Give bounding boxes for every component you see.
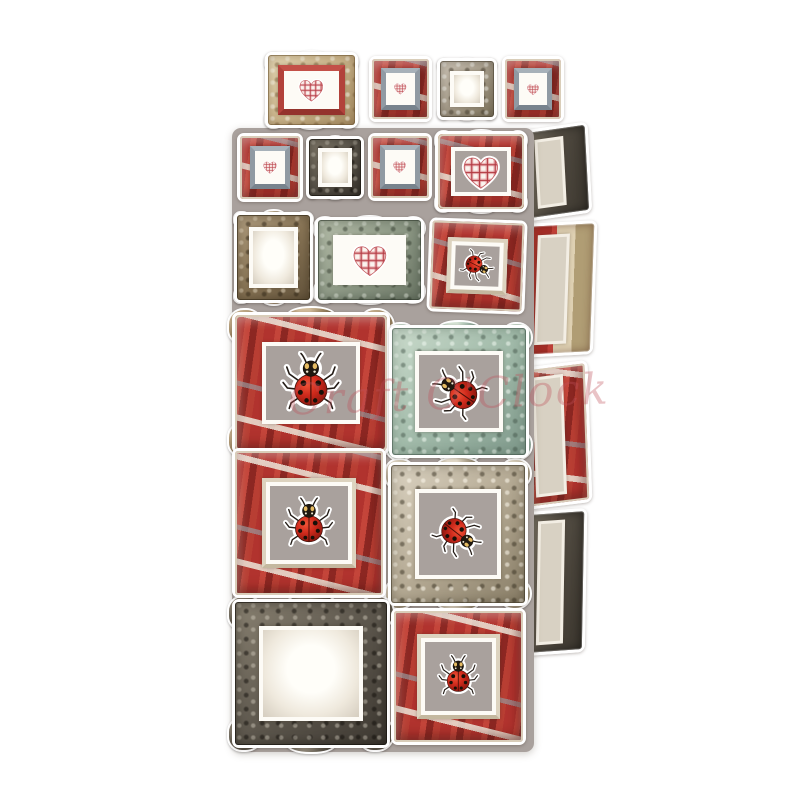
frame-mat (259, 626, 362, 720)
frame-heart-red-a1 (237, 133, 303, 202)
frame-heart-red-top-2 (502, 56, 564, 122)
frame-band (392, 328, 526, 455)
frame-mat (415, 489, 501, 579)
frame-band (240, 136, 300, 199)
frame-band (309, 139, 361, 196)
frame-empty-dark-large (232, 599, 390, 748)
frame-center (523, 77, 543, 101)
frame-mat (415, 351, 503, 432)
frame-mat (446, 237, 509, 296)
frame-center (322, 152, 347, 182)
frame-band (268, 55, 355, 125)
frame-band (372, 59, 429, 119)
frame-empty-silver-top (437, 58, 497, 120)
frame-empty-bronze (234, 212, 313, 303)
frame-band (391, 465, 525, 603)
frame-band (318, 220, 421, 300)
frame-heart-sage (315, 217, 424, 303)
ladybug-icon (283, 496, 335, 550)
frame-center (337, 239, 401, 280)
frame-mat (381, 68, 420, 110)
heart-icon (262, 160, 278, 174)
heart-icon (460, 153, 502, 191)
frame-ladybug-red-ornate (232, 312, 390, 454)
frame-heart-red-a3 (368, 133, 432, 201)
frame-mat (451, 147, 511, 196)
frame-mat (380, 145, 419, 188)
frame-band (235, 315, 387, 451)
frame-center (270, 486, 349, 561)
frame-center (266, 346, 357, 421)
product-image: Craft O'Clock (0, 0, 800, 800)
frame-center (454, 75, 481, 104)
frame-mat (249, 227, 297, 287)
frame-mat (250, 146, 291, 190)
frame-center (263, 630, 358, 716)
frame-band (371, 136, 429, 198)
ladybug-icon (455, 244, 499, 288)
frame-mat (262, 342, 361, 425)
frame-band (440, 61, 494, 117)
frame-center (259, 155, 282, 181)
frame-heart-red-large (435, 131, 527, 212)
frame-heart-red-top-1 (369, 56, 432, 122)
frame-ladybug-teal (389, 325, 529, 458)
ladybug-icon (280, 351, 342, 415)
frame-band (235, 451, 383, 595)
frame-ladybug-red-wood (232, 448, 386, 598)
frame-center (425, 642, 492, 711)
frame-heart-gold-ornate (265, 52, 358, 128)
ladybug-icon (421, 354, 497, 429)
heart-icon (526, 83, 540, 96)
frame-mat (318, 148, 351, 186)
frame-center (419, 355, 499, 428)
heart-icon (392, 160, 407, 174)
frame-ladybug-red-bottom (391, 608, 526, 745)
frame-band (237, 215, 310, 300)
frame-center (389, 154, 410, 179)
frame-mat (514, 68, 552, 110)
frame-center (390, 77, 411, 101)
heart-icon (350, 242, 390, 278)
heart-icon (297, 77, 326, 103)
heart-icon (393, 82, 408, 95)
frame-ladybug-baroque (388, 462, 528, 606)
frames-layer (0, 0, 800, 800)
frame-ladybug-red-b3 (426, 217, 527, 314)
frame-mat (417, 634, 500, 719)
frame-empty-dark-a2 (306, 136, 364, 199)
frame-band (505, 59, 561, 119)
frame-center (454, 245, 500, 287)
frame-mat (450, 71, 485, 108)
frame-center (253, 231, 293, 283)
frame-band (394, 611, 523, 742)
frame-band (429, 220, 524, 311)
frame-mat (278, 65, 344, 114)
frame-center (419, 493, 497, 575)
frame-center (455, 151, 507, 192)
ladybug-icon (423, 500, 492, 569)
ladybug-icon (437, 654, 480, 698)
frame-mat (262, 478, 357, 569)
frame-mat (333, 235, 405, 284)
frame-center (288, 75, 334, 104)
frame-band (235, 602, 387, 745)
frame-band (438, 134, 524, 209)
